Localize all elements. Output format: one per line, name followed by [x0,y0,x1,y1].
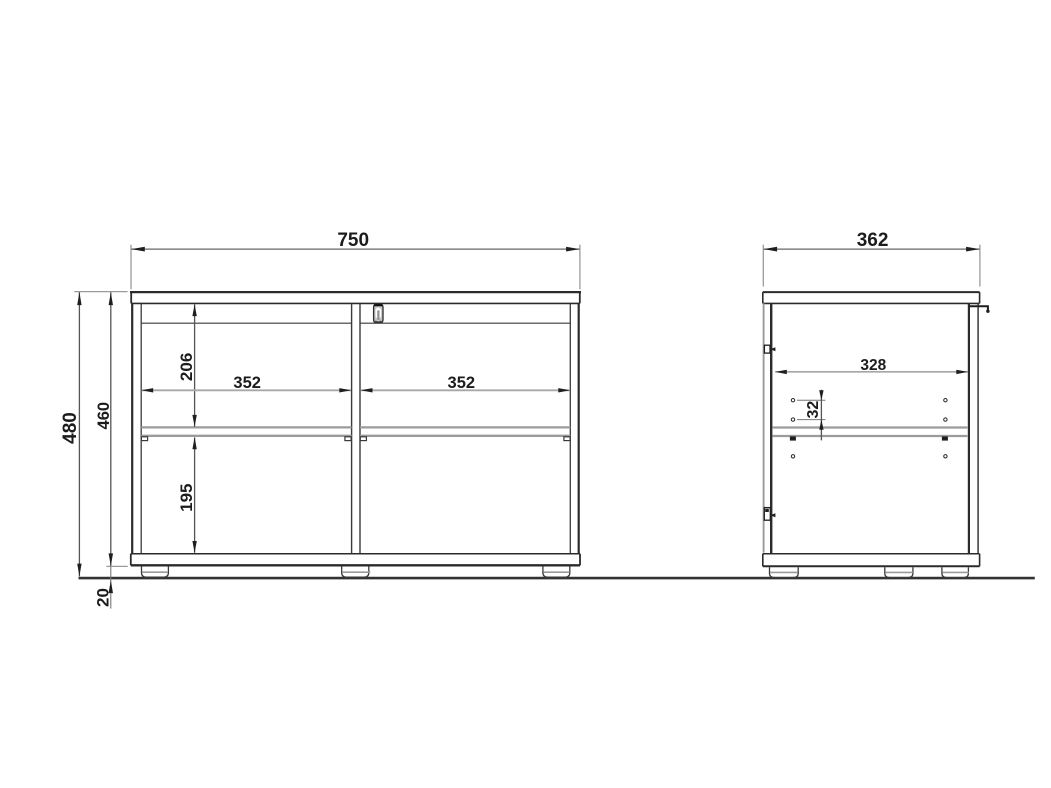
svg-text:206: 206 [177,353,196,381]
svg-text:352: 352 [448,374,476,392]
svg-text:460: 460 [95,402,113,430]
svg-text:32: 32 [805,401,822,419]
svg-text:480: 480 [60,412,81,444]
svg-text:362: 362 [857,230,889,251]
svg-text:352: 352 [233,374,261,392]
svg-text:750: 750 [337,230,369,251]
svg-text:328: 328 [860,357,886,374]
svg-text:195: 195 [177,484,196,512]
svg-text:20: 20 [94,588,113,607]
